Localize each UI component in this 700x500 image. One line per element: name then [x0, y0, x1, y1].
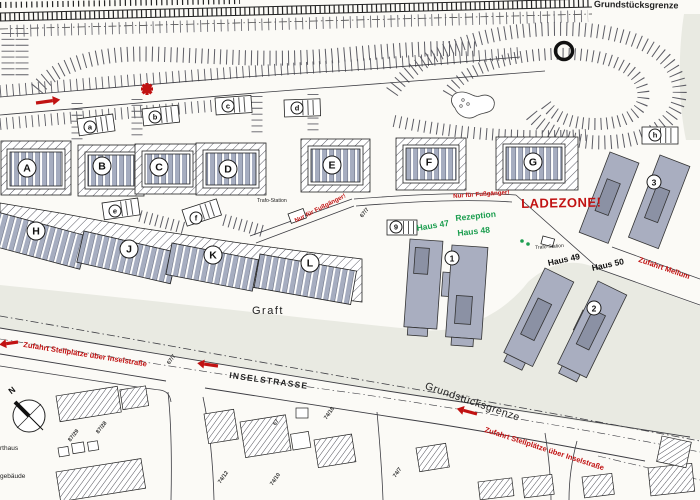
arrow-right-top: [35, 95, 61, 107]
red-star-marker: [141, 83, 153, 95]
haus-47-building: [403, 239, 443, 337]
building-blocks-top-row: [1, 137, 578, 196]
arrow-left-bottom-right: [456, 404, 479, 418]
building-blocks-second-row: [0, 203, 362, 305]
haus-48-building: [445, 245, 488, 347]
site-plan: GrundstücksgrenzeGrundstücksgrenzeGraftI…: [0, 0, 700, 500]
building-3a: [579, 152, 639, 243]
compass-rose: [13, 400, 45, 432]
pond: [451, 92, 494, 118]
site-plan-graphics: [0, 0, 700, 500]
building-3b: [628, 155, 689, 249]
